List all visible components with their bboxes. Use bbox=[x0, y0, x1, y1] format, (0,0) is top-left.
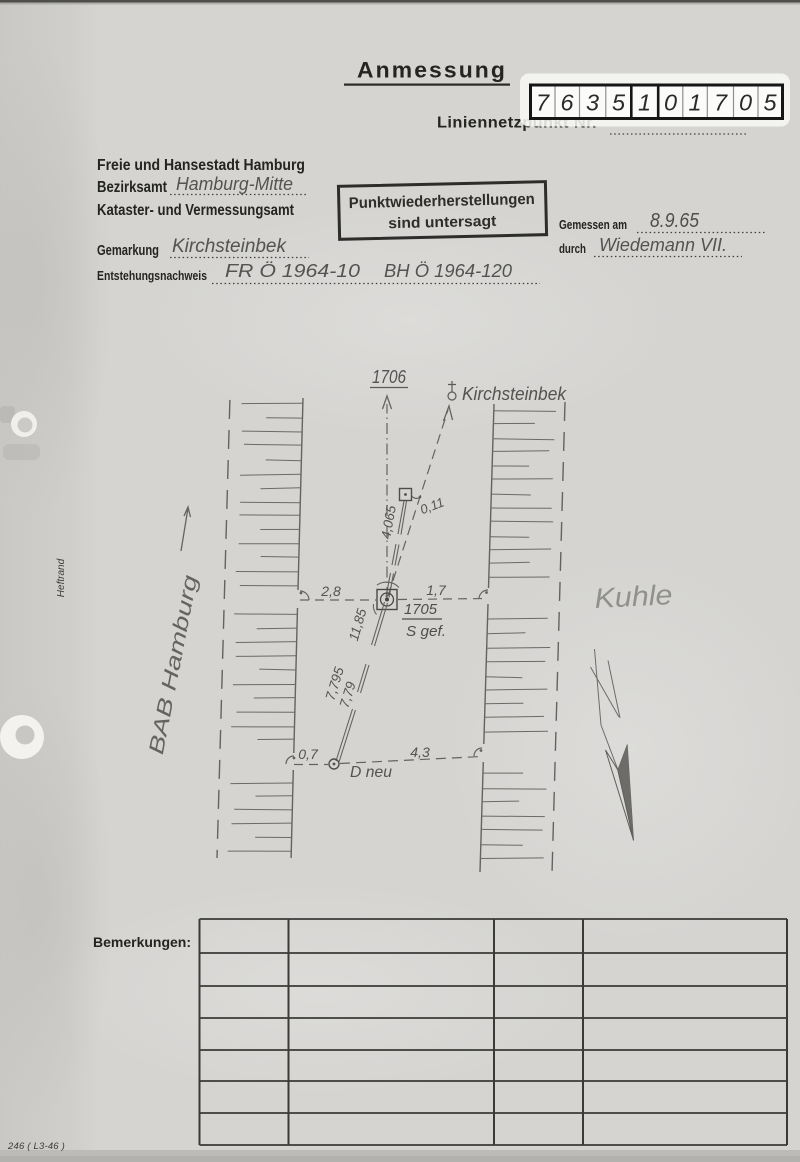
svg-text:3: 3 bbox=[586, 90, 599, 116]
svg-text:1: 1 bbox=[638, 90, 651, 116]
svg-text:4,3: 4,3 bbox=[410, 744, 430, 760]
svg-text:1,7: 1,7 bbox=[426, 582, 447, 598]
svg-text:5: 5 bbox=[763, 90, 777, 116]
svg-text:Freie und Hansestadt Hamburg: Freie und Hansestadt Hamburg bbox=[97, 157, 305, 174]
svg-text:Kataster- und Vermessungsamt: Kataster- und Vermessungsamt bbox=[97, 202, 294, 219]
svg-text:S gef.: S gef. bbox=[406, 623, 446, 640]
svg-text:Gemarkung: Gemarkung bbox=[97, 243, 159, 259]
svg-text:0,7: 0,7 bbox=[298, 746, 319, 762]
svg-text:8.9.65: 8.9.65 bbox=[650, 210, 700, 232]
svg-text:7: 7 bbox=[714, 90, 728, 116]
svg-text:Entstehungsnachweis: Entstehungsnachweis bbox=[97, 268, 207, 283]
svg-text:Heftrand: Heftrand bbox=[56, 558, 67, 597]
svg-text:BH Ö 1964-120: BH Ö 1964-120 bbox=[384, 260, 513, 281]
svg-text:Gemessen am: Gemessen am bbox=[559, 218, 627, 232]
svg-text:0: 0 bbox=[664, 90, 677, 116]
svg-text:1: 1 bbox=[688, 90, 701, 116]
svg-text:durch: durch bbox=[559, 242, 586, 256]
svg-text:0: 0 bbox=[739, 90, 752, 116]
svg-text:6: 6 bbox=[560, 90, 574, 116]
svg-text:D neu: D neu bbox=[350, 764, 392, 781]
svg-text:Kirchsteinbek: Kirchsteinbek bbox=[172, 236, 287, 257]
svg-text:5: 5 bbox=[612, 90, 626, 116]
svg-text:Wiedemann VII.: Wiedemann VII. bbox=[599, 235, 727, 255]
svg-text:Kuhle: Kuhle bbox=[594, 579, 674, 614]
svg-text:246 ( L3-46 ): 246 ( L3-46 ) bbox=[7, 1141, 65, 1152]
svg-text:sind untersagt: sind untersagt bbox=[388, 213, 496, 232]
svg-text:2,8: 2,8 bbox=[320, 583, 341, 599]
svg-text:FR Ö 1964-10: FR Ö 1964-10 bbox=[225, 260, 361, 281]
svg-text:Kirchsteinbek: Kirchsteinbek bbox=[462, 384, 567, 404]
svg-text:Bezirksamt: Bezirksamt bbox=[97, 179, 167, 196]
svg-text:Hamburg-Mitte: Hamburg-Mitte bbox=[176, 174, 293, 194]
svg-text:Bemerkungen:: Bemerkungen: bbox=[93, 935, 191, 950]
svg-text:1706: 1706 bbox=[372, 367, 407, 387]
svg-text:1705: 1705 bbox=[404, 601, 438, 618]
svg-text:7: 7 bbox=[536, 90, 550, 116]
svg-text:Anmessung: Anmessung bbox=[357, 58, 507, 83]
